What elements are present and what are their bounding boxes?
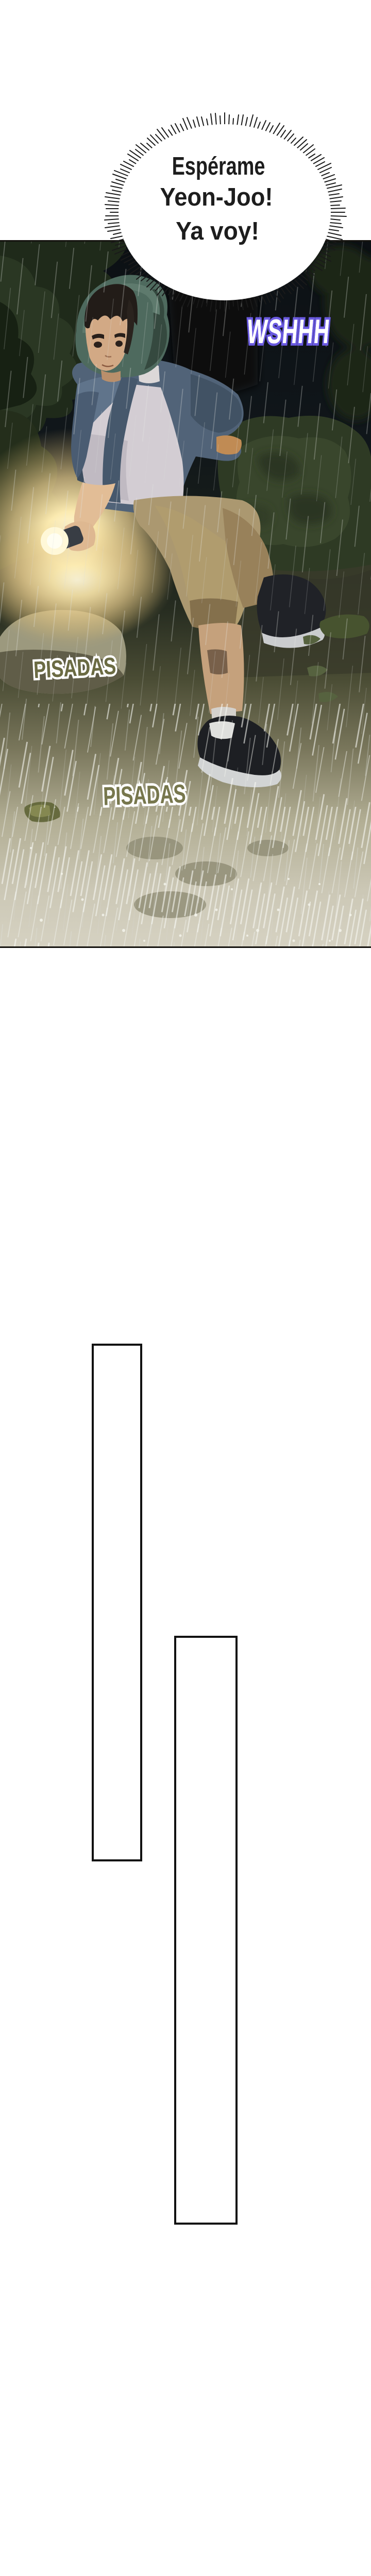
svg-text:Ya voy!: Ya voy! <box>176 217 259 246</box>
svg-text:Yeon-Joo!: Yeon-Joo! <box>160 183 273 211</box>
svg-text:PISADAS: PISADAS <box>33 653 116 684</box>
svg-text:PISADAS: PISADAS <box>103 780 187 811</box>
svg-text:Espérame: Espérame <box>172 152 265 180</box>
